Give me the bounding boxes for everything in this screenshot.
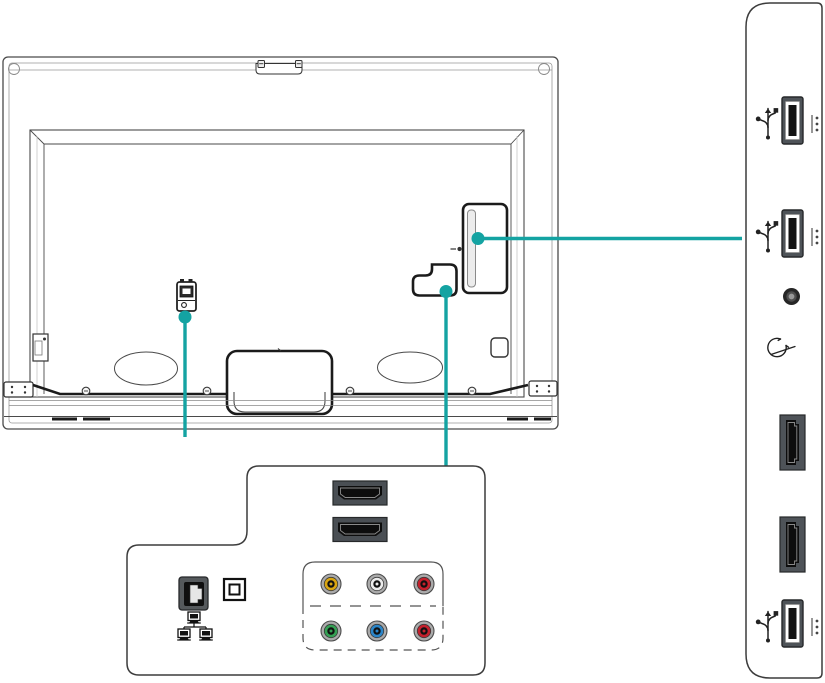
power-connector-icon <box>177 279 196 311</box>
usb-port-shape <box>782 600 803 647</box>
hdmi-port-2 <box>780 517 805 572</box>
headphone-jack <box>783 288 800 305</box>
callout-dot <box>440 285 453 298</box>
callout-dot <box>472 232 485 245</box>
rca-jack-composite-video <box>321 574 341 594</box>
bracket-screw-icon <box>296 61 303 68</box>
optical-audio-port-icon <box>224 579 245 600</box>
side-port-cover <box>463 204 507 293</box>
rca-jack-audio-left <box>367 574 387 594</box>
screw-icon <box>346 387 354 395</box>
screw-icon <box>82 387 90 395</box>
vent-dash <box>507 418 528 421</box>
callout-dot <box>179 311 192 324</box>
cable-clip <box>491 338 508 357</box>
vent-dash <box>52 418 77 421</box>
diagram-canvas <box>0 0 825 683</box>
stand-mount <box>227 349 332 415</box>
screw-icon <box>203 387 211 395</box>
rca-jack-component-y <box>321 621 341 641</box>
label-plate-right <box>529 381 557 396</box>
bottom-panel-detail <box>127 466 485 675</box>
label-plate-left <box>4 382 33 397</box>
rca-jack-audio-right <box>414 574 434 594</box>
vent-dash <box>83 418 110 421</box>
hdmi-port-4 <box>333 518 387 542</box>
usb-port-shape <box>782 97 803 144</box>
ethernet-port-icon <box>179 577 208 610</box>
bottom-panel-outline <box>127 466 485 675</box>
rca-jack-component-pb <box>367 621 387 641</box>
side-panel-detail <box>746 3 822 678</box>
bracket-screw-icon <box>258 61 265 68</box>
hdmi-port-1 <box>780 415 805 470</box>
rca-jack-component-pr <box>414 621 434 641</box>
usb-port-shape <box>782 210 803 257</box>
hdmi-port-3 <box>333 481 387 505</box>
tv-rear-connection-diagram <box>0 0 825 683</box>
screw-icon <box>468 387 476 395</box>
left-service-port <box>33 334 48 361</box>
vent-dash <box>534 418 551 421</box>
